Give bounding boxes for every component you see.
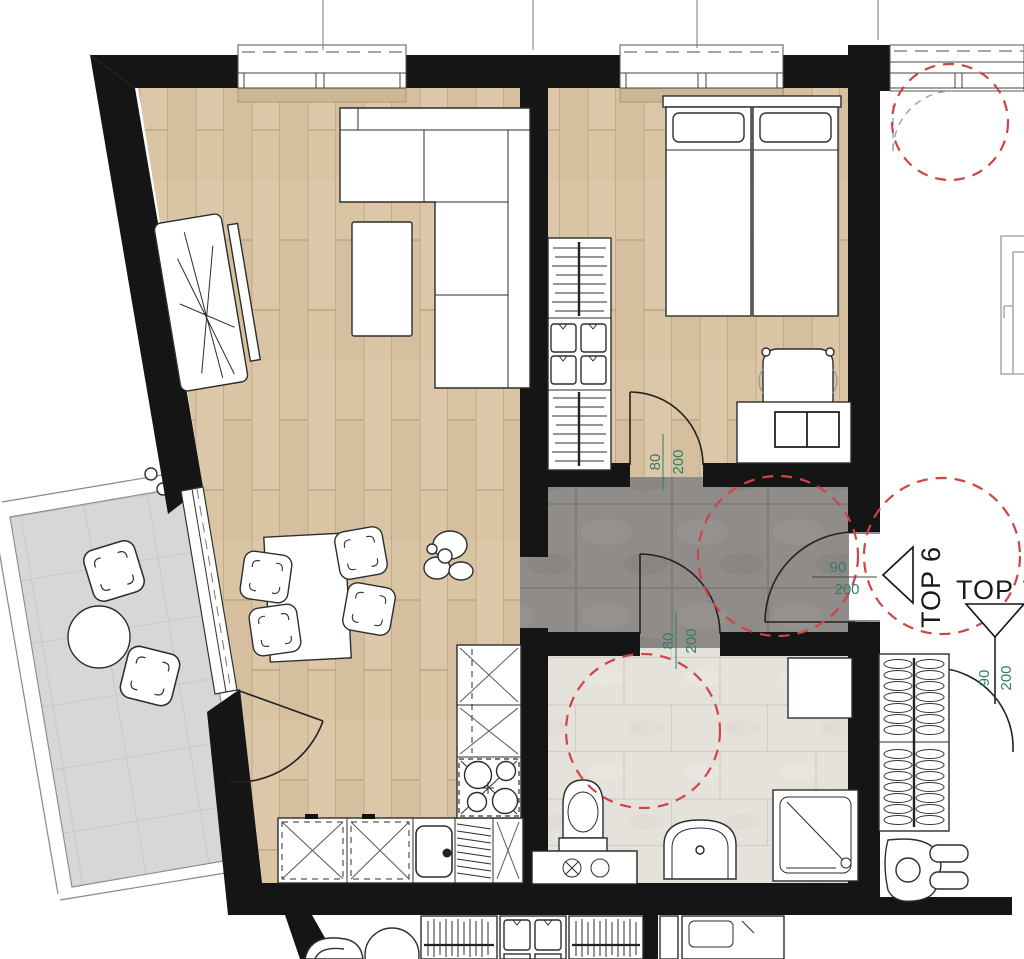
living-room-window — [238, 45, 406, 102]
dining-chair — [333, 525, 389, 581]
neighbor-window — [890, 45, 1024, 91]
top7-door-height: 200 — [998, 665, 1015, 690]
top6-label: TOP 6 — [916, 546, 946, 628]
wall-neighbor-stub — [643, 915, 658, 959]
bedroom-door-width: 80 — [647, 454, 664, 471]
kitchen-faucet — [443, 849, 452, 858]
wall-right-upper — [848, 88, 880, 532]
washer-connection — [532, 851, 637, 884]
burner — [493, 789, 518, 814]
coffee-table — [352, 222, 412, 336]
wall-hall-top-right — [703, 463, 848, 487]
open-book — [775, 412, 839, 447]
entry-door-width: 90 — [830, 559, 847, 576]
neighbor-hanger-unit — [569, 916, 643, 959]
bathroom-door-height: 200 — [683, 628, 700, 653]
pillow — [760, 113, 831, 142]
downpipe — [145, 468, 157, 480]
pillow — [673, 113, 744, 142]
hallway-floor — [520, 477, 880, 658]
counter-handle — [362, 814, 375, 819]
toilet — [559, 780, 607, 860]
entry-door-height: 200 — [834, 581, 859, 598]
corridor-wardrobe — [879, 654, 949, 831]
neighbor-folded-clothes — [500, 916, 566, 959]
top7-label: TOP 7 — [956, 575, 1024, 605]
wardrobe — [548, 238, 611, 470]
wall-living-bath — [520, 628, 548, 885]
wall-top-corner — [848, 45, 893, 91]
neighbor-nightstand — [660, 916, 678, 959]
counter-handle — [305, 814, 318, 819]
neighbor-bed — [682, 916, 784, 959]
floor-plan: 80 200 80 200 90 200 90 200 TOP 6 TOP 7 — [0, 0, 1024, 959]
neighbor-hanger-unit — [421, 916, 497, 959]
headboard — [663, 96, 841, 107]
bedroom-door-height: 200 — [670, 449, 687, 474]
dining-chair — [248, 603, 302, 657]
dining-chair — [239, 550, 293, 604]
bedroom-window — [620, 45, 783, 102]
bathroom-cabinet — [788, 658, 852, 718]
wall-corridor-bottom — [848, 897, 1012, 915]
wall-bath-top-left — [548, 632, 640, 656]
wall-bottom — [255, 883, 880, 915]
bathroom-door-width: 80 — [660, 633, 677, 650]
burner — [497, 762, 516, 781]
burner — [465, 762, 492, 789]
kitchen-counter — [278, 818, 523, 883]
dining-chair — [341, 581, 397, 637]
wall-living-hall-upper — [520, 463, 548, 557]
burner — [468, 793, 487, 812]
wall-top-right — [783, 55, 848, 88]
top7-door-width: 90 — [976, 670, 993, 687]
shower — [773, 790, 858, 881]
wall-top-mid — [406, 55, 620, 88]
balcony-table — [68, 606, 130, 668]
washbasin — [664, 820, 736, 879]
